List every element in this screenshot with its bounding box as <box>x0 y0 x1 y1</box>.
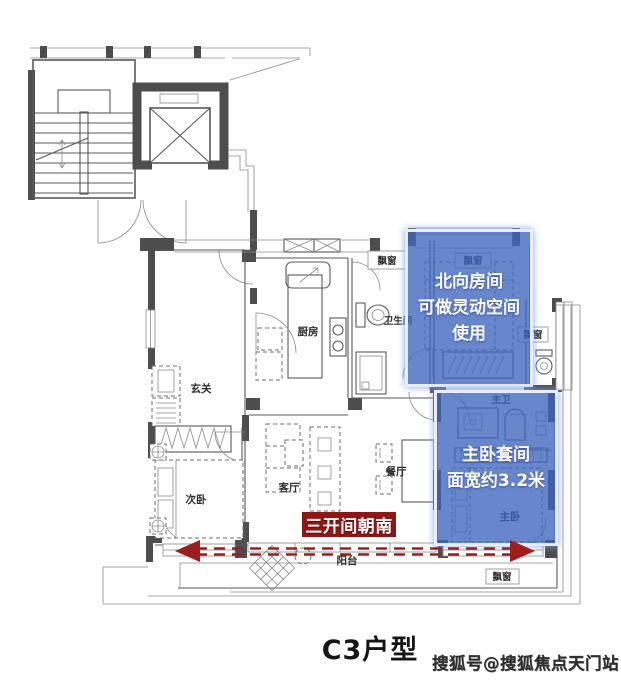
second-bedroom: 次卧 <box>150 426 245 538</box>
kitchen: 厨房 <box>256 262 346 380</box>
bay-window-label-north: 飘窗 <box>376 255 397 267</box>
entry-label: 玄关 <box>191 382 212 395</box>
arrowhead-right-icon <box>510 540 535 562</box>
second-bedroom-label: 次卧 <box>186 493 207 506</box>
bay-window-label-south: 飘窗 <box>491 571 512 583</box>
dining-room-label: 餐厅 <box>385 465 407 478</box>
south-facing-banner: 三开间朝南 <box>302 512 396 537</box>
balcony-label: 阳台 <box>337 554 358 567</box>
north-room-annotation-line2: 可做灵动空间 <box>418 295 520 321</box>
kitchen-label: 厨房 <box>298 325 319 338</box>
floorplan-page: 厨房 卫生间 飘窗 飘窗 <box>0 0 621 681</box>
north-room-annotation-line1: 北向房间 <box>435 269 503 295</box>
arrowhead-left-icon <box>175 540 200 562</box>
building-outline <box>228 48 310 212</box>
master-suite-annotation-line1: 主卧套间 <box>462 442 530 468</box>
master-suite-annotation: 主卧套间 面宽约3.2米 <box>434 390 558 546</box>
dining-room: 餐厅 <box>376 440 434 502</box>
master-suite-annotation-line2: 面宽约3.2米 <box>447 468 545 494</box>
elevator <box>137 87 224 170</box>
north-room-annotation: 北向房间 可做灵动空间 使用 <box>405 229 533 387</box>
entry-hall: 玄关 <box>152 366 212 426</box>
lobby-doors <box>98 200 186 243</box>
north-room-annotation-line3: 使用 <box>452 321 486 347</box>
living-room-label: 客厅 <box>278 481 300 494</box>
living-room: 客厅 <box>266 424 340 511</box>
watermark: 搜狐号@搜狐焦点天门站 <box>359 650 619 674</box>
